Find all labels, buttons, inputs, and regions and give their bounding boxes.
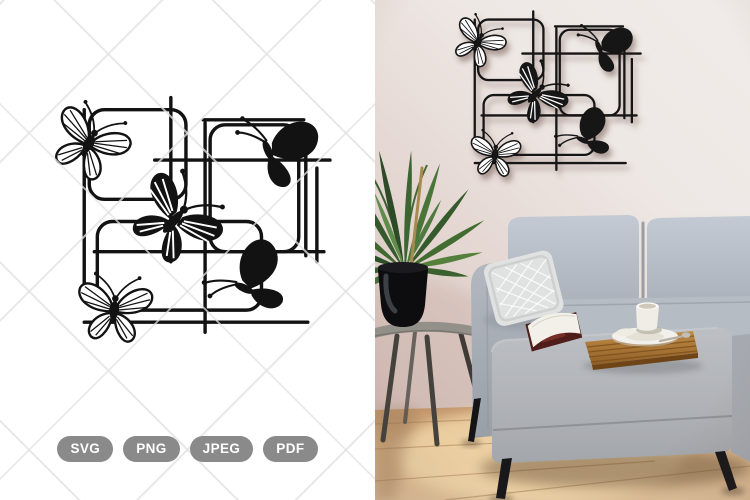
room-mockup-photo (375, 0, 750, 500)
trellis-grid-and-butterflies-icon (41, 93, 330, 344)
format-badge-pdf: PDF (263, 436, 317, 462)
product-mockup-image: SVG PNG JPEG PDF (0, 0, 750, 500)
butterfly-trellis-design (52, 92, 334, 350)
format-badge-png: PNG (123, 436, 179, 462)
living-room-scene (375, 0, 750, 500)
file-format-badges: SVG PNG JPEG PDF (0, 436, 375, 462)
photo-vignette (375, 0, 750, 500)
format-badge-jpeg: JPEG (190, 436, 254, 462)
format-badge-svg: SVG (57, 436, 113, 462)
design-preview-panel: SVG PNG JPEG PDF (0, 0, 375, 500)
